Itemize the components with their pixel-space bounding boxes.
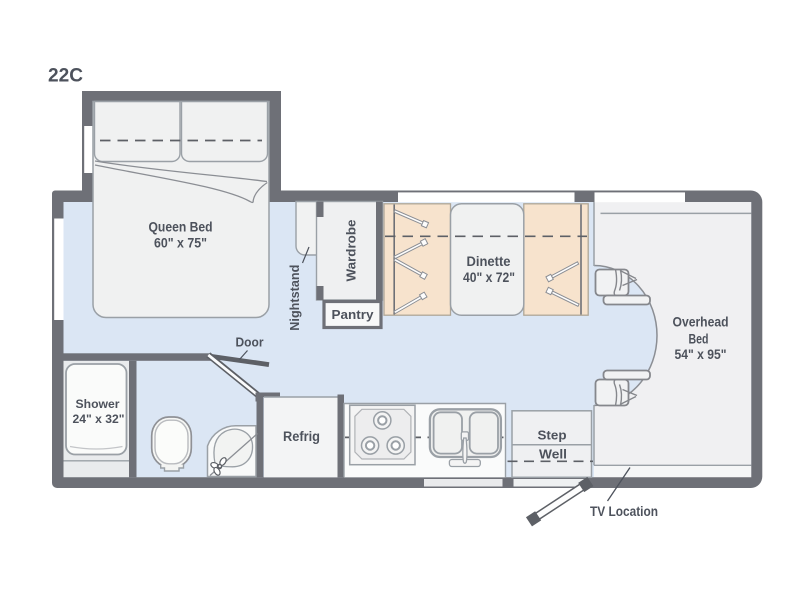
svg-text:Nightstand: Nightstand — [287, 265, 302, 331]
svg-text:TV Location: TV Location — [590, 504, 658, 519]
svg-text:Dinette: Dinette — [467, 253, 511, 269]
svg-text:Shower: Shower — [76, 399, 121, 411]
svg-text:Bed: Bed — [689, 332, 709, 347]
svg-text:Refrig: Refrig — [283, 429, 320, 444]
svg-text:40" x 72": 40" x 72" — [463, 269, 515, 285]
svg-text:Queen Bed: Queen Bed — [149, 219, 213, 235]
svg-text:Door: Door — [236, 335, 264, 350]
svg-text:Step: Step — [538, 429, 567, 443]
svg-text:Pantry: Pantry — [332, 308, 374, 322]
svg-text:24" x 32": 24" x 32" — [73, 414, 125, 426]
svg-text:Wardrobe: Wardrobe — [344, 220, 359, 282]
svg-text:Overhead: Overhead — [673, 315, 729, 330]
svg-text:60" x 75": 60" x 75" — [154, 235, 207, 251]
svg-text:22C: 22C — [48, 65, 83, 87]
svg-text:54" x 95": 54" x 95" — [675, 347, 727, 362]
svg-text:Well: Well — [539, 448, 567, 462]
